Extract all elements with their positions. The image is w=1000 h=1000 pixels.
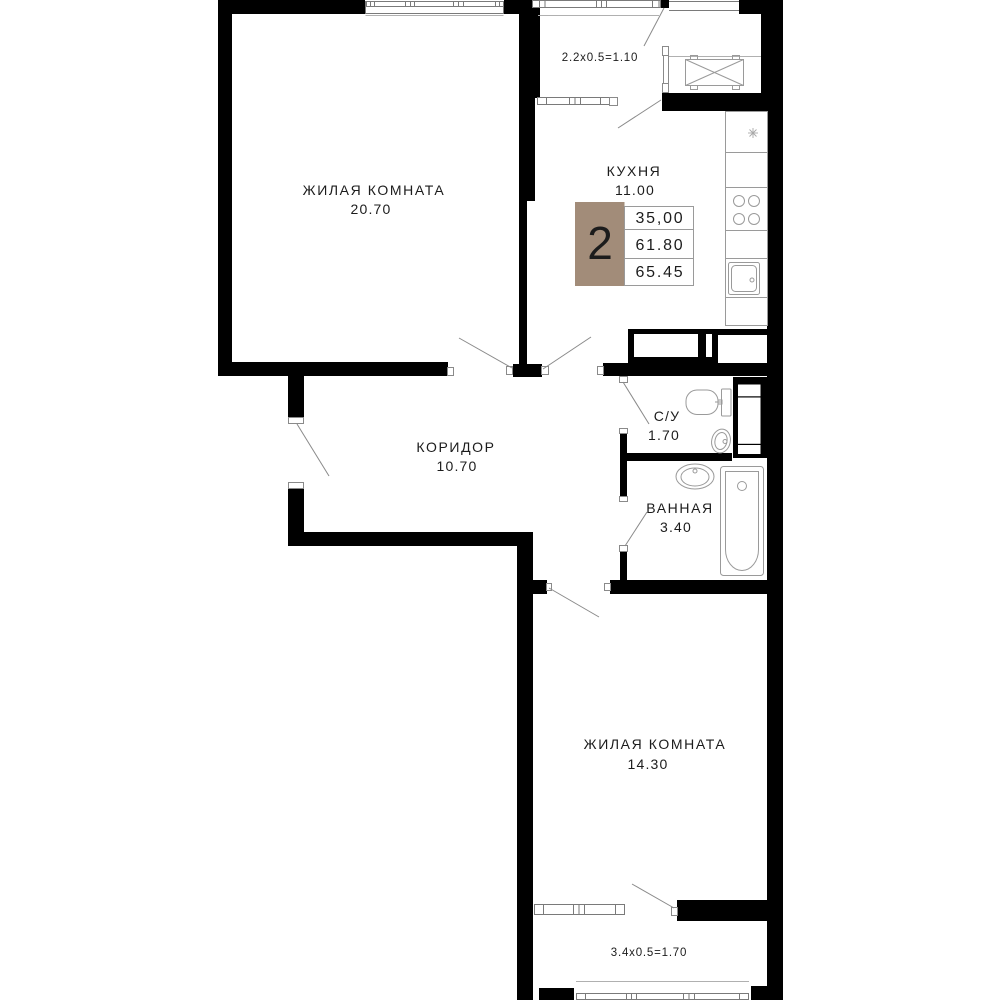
- svg-text:35,00: 35,00: [635, 210, 684, 227]
- svg-text:14.30: 14.30: [627, 756, 668, 772]
- svg-text:КОРИДОР: КОРИДОР: [416, 439, 495, 455]
- svg-text:3.40: 3.40: [660, 519, 692, 535]
- svg-text:2: 2: [587, 217, 613, 269]
- svg-text:2.2x0.5=1.10: 2.2x0.5=1.10: [562, 52, 638, 64]
- svg-text:3.4x0.5=1.70: 3.4x0.5=1.70: [611, 947, 687, 959]
- svg-text:11.00: 11.00: [615, 182, 655, 198]
- svg-text:ЖИЛАЯ КОМНАТА: ЖИЛАЯ КОМНАТА: [303, 182, 446, 198]
- svg-text:1.70: 1.70: [648, 427, 680, 443]
- svg-text:10.70: 10.70: [436, 458, 477, 474]
- svg-text:20.70: 20.70: [350, 201, 391, 217]
- svg-text:С/У: С/У: [654, 408, 681, 424]
- svg-text:КУХНЯ: КУХНЯ: [607, 163, 662, 179]
- svg-text:ВАННАЯ: ВАННАЯ: [646, 500, 713, 516]
- svg-text:ЖИЛАЯ КОМНАТА: ЖИЛАЯ КОМНАТА: [584, 736, 727, 752]
- svg-text:61.80: 61.80: [635, 237, 684, 254]
- svg-text:65.45: 65.45: [635, 264, 684, 281]
